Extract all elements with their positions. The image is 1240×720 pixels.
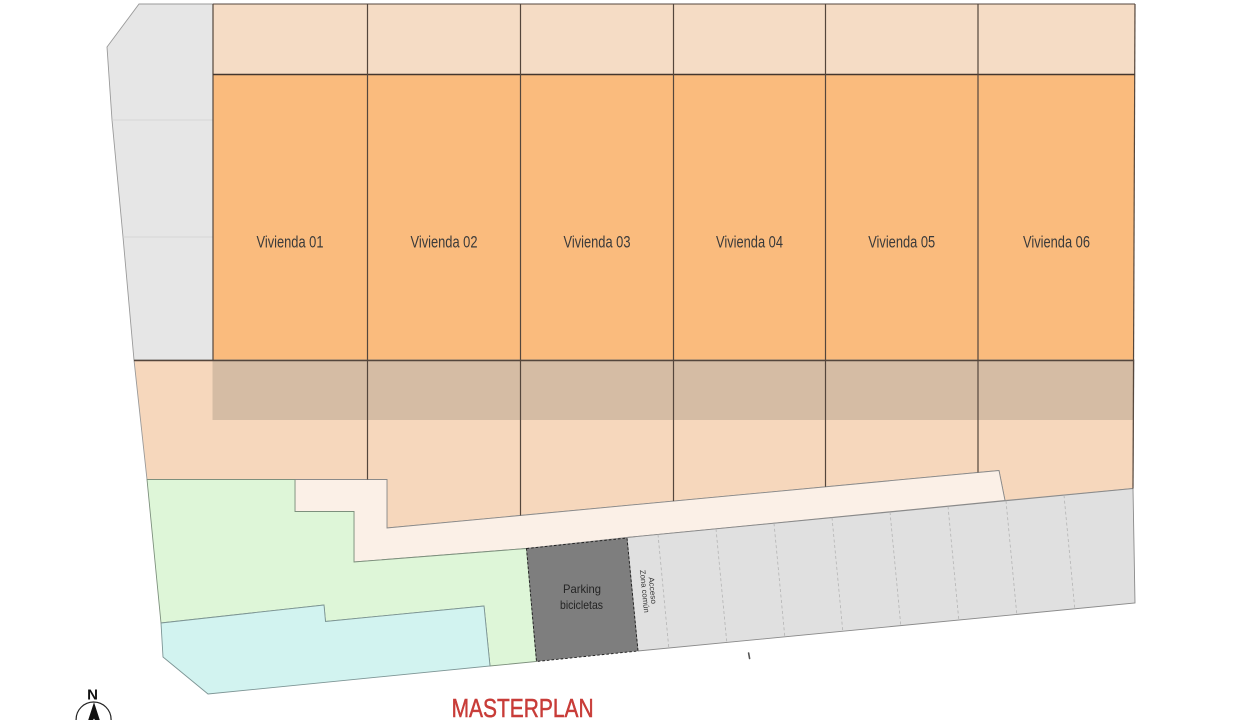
svg-text:Parking: Parking: [563, 582, 601, 596]
svg-text:Vivienda 04: Vivienda 04: [716, 233, 783, 252]
svg-text:N: N: [87, 687, 98, 704]
svg-text:Vivienda 05: Vivienda 05: [868, 233, 935, 252]
svg-text:Vivienda 03: Vivienda 03: [564, 233, 631, 252]
svg-text:Vivienda 02: Vivienda 02: [411, 233, 478, 252]
svg-text:bicicletas: bicicletas: [560, 598, 603, 612]
svg-text:MASTERPLAN: MASTERPLAN: [452, 693, 594, 720]
svg-text:Vivienda 06: Vivienda 06: [1023, 233, 1090, 252]
svg-text:Vivienda 01: Vivienda 01: [257, 233, 324, 252]
